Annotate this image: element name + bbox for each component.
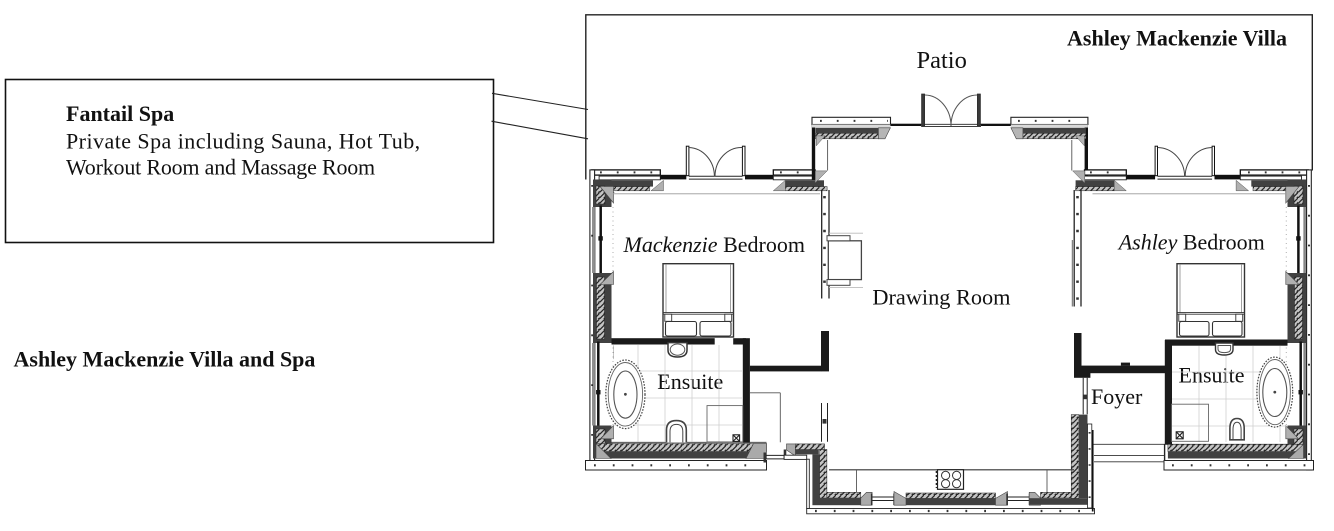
svg-text:Ensuite: Ensuite [657, 369, 723, 394]
svg-text:Mackenzie Bedroom: Mackenzie Bedroom [623, 232, 805, 257]
svg-text:Ashley Mackenzie Villa: Ashley Mackenzie Villa [1067, 26, 1287, 51]
svg-text:Drawing Room: Drawing Room [872, 285, 1010, 310]
svg-text:Ensuite: Ensuite [1179, 363, 1245, 388]
svg-text:Fantail Spa: Fantail Spa [66, 101, 174, 126]
svg-text:Private Spa including Sauna, H: Private Spa including Sauna, Hot Tub, [66, 129, 421, 154]
svg-text:Workout Room and Massage Room: Workout Room and Massage Room [66, 155, 375, 180]
svg-text:Ashley Mackenzie Villa and Spa: Ashley Mackenzie Villa and Spa [14, 347, 316, 372]
svg-text:Patio: Patio [917, 47, 967, 74]
svg-text:Ashley Bedroom: Ashley Bedroom [1117, 230, 1265, 255]
svg-text:Foyer: Foyer [1091, 384, 1143, 409]
